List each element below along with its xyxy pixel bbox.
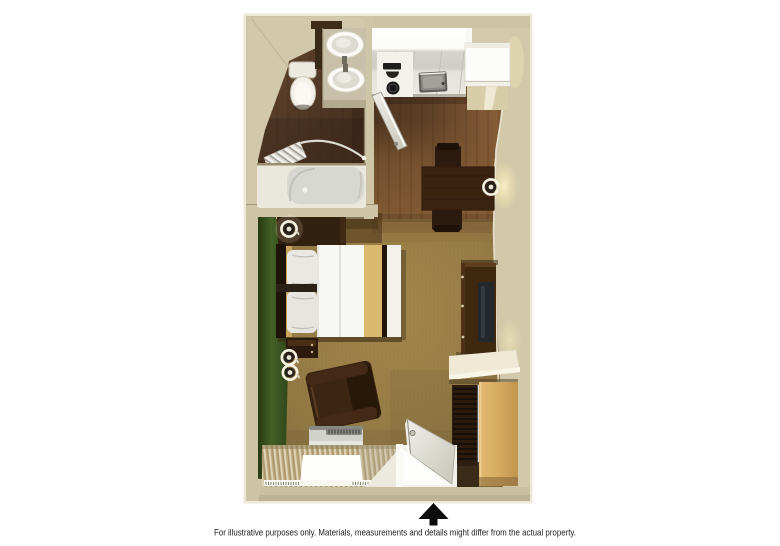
svg-text:For illustrative purposes only: For illustrative purposes only. Material… [214,528,576,538]
